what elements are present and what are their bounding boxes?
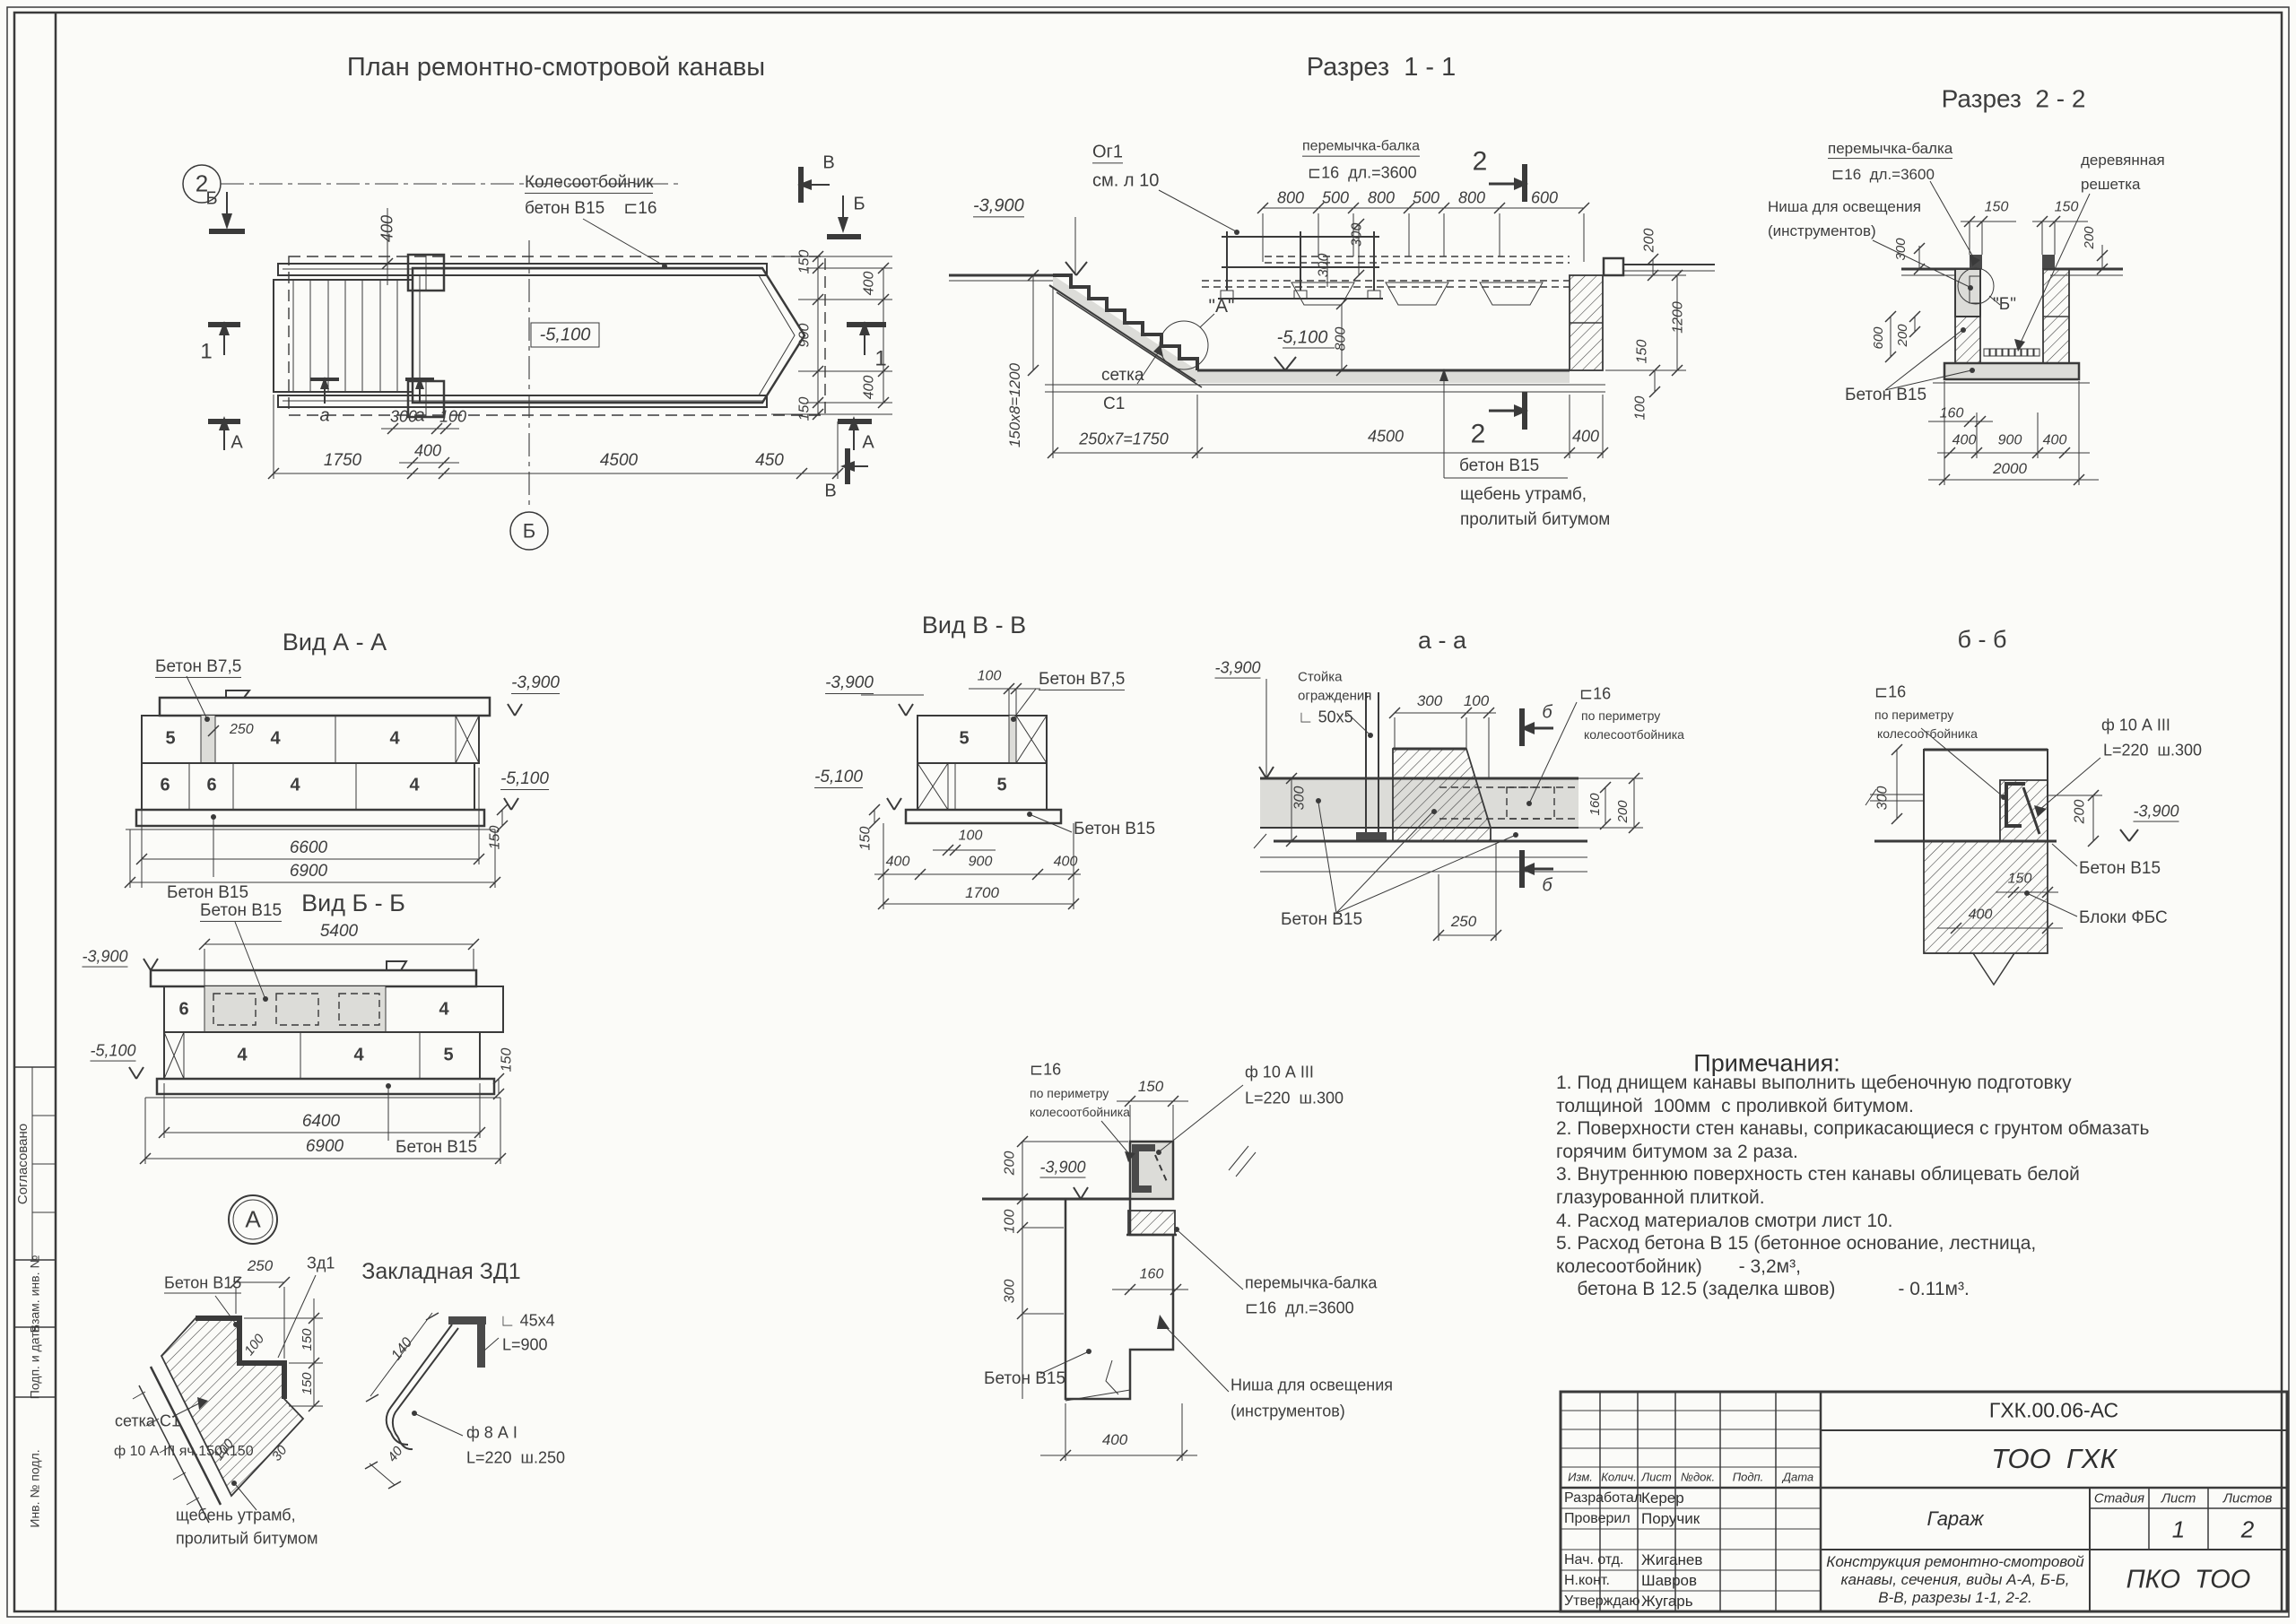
label-r11-dim-800v: 800	[1335, 327, 1350, 352]
label-vbb-block-4c: 4	[353, 1046, 363, 1065]
label-vvv-dim-100b: 100	[959, 829, 983, 845]
label-db-f10b: L=220 ш.300	[1245, 1090, 1344, 1107]
titleblock-desc-line1: Конструкция ремонтно-смотровой	[1826, 1553, 2083, 1571]
note-line-8: 5. Расход бетона В 15 (бетонное основани…	[1556, 1233, 2283, 1256]
label-r22-derev: деревянная	[2081, 152, 2165, 169]
label-r22-peremychka2: ⊏16 дл.=3600	[1831, 167, 1935, 183]
label-vvv-dim-900: 900	[969, 855, 993, 871]
label-da-dim-150a: 150	[300, 1328, 315, 1350]
note-line-2: толщиной 100мм с проливкой битумом.	[1556, 1096, 2283, 1119]
label-r11-dim-4500: 4500	[1368, 429, 1404, 446]
label-r11-setka: сетка	[1101, 367, 1144, 385]
titleblock-row6-name: Жугарь	[1641, 1593, 1693, 1611]
label-r11-detail-a: "А"	[1209, 297, 1235, 317]
label-plan-1-mark-right: 1	[874, 347, 886, 369]
label-r22-dim-200b: 200	[1896, 324, 1910, 346]
label-sbb-bloki: Блоки ФБС	[2079, 909, 2168, 927]
label-r11-dim-300a: 300	[1351, 223, 1366, 248]
label-vaa-block-4c: 4	[290, 777, 300, 795]
plan-view-drawing	[183, 165, 892, 550]
label-vvv-block-5a: 5	[959, 730, 969, 749]
label-stamp-soglasovano: Согласовано	[16, 1124, 30, 1204]
note-line-4: горячим битумом за 2 раза.	[1556, 1142, 2283, 1165]
label-r22-peremychka: перемычка-балка	[1828, 141, 1952, 159]
label-zk-ugolok: ∟ 45x4	[500, 1313, 555, 1330]
label-viewBB-title: Вид Б - Б	[301, 890, 405, 916]
label-vvv-beton15: Бетон В15	[1074, 821, 1155, 838]
titleblock-sheet-num: 1	[2172, 1516, 2185, 1544]
label-plan-v-mark-top: В	[822, 154, 834, 173]
label-plan-title: План ремонтно-смотровой канавы	[347, 54, 765, 81]
label-r11-2-top: 2	[1473, 147, 1488, 176]
label-vbb-dim-6400: 6400	[302, 1113, 340, 1131]
titleblock-object: Гараж	[1926, 1507, 1983, 1531]
label-r11-dim-500b: 500	[1413, 190, 1439, 207]
label-vbb-block-4b: 4	[237, 1046, 247, 1065]
label-r11-peremychka: перемычка-балка	[1302, 140, 1420, 157]
note-line-5: 3. Внутреннюю поверхность стен канавы об…	[1556, 1164, 2283, 1187]
label-plan-kolesootboynik: Колесоотбойник	[525, 174, 653, 194]
label-db-c16b: по периметру	[1030, 1087, 1109, 1100]
label-section22-title: Разрез 2 - 2	[1942, 85, 2086, 111]
label-r22-dim-2000: 2000	[1993, 461, 2027, 477]
label-saa-dim-300l: 300	[1293, 786, 1309, 811]
label-vaa-block-4a: 4	[270, 730, 280, 749]
label-r22-nisha: Ниша для освещения	[1768, 199, 1921, 215]
label-plan-a-mark-right: А	[862, 434, 874, 453]
label-viewAA-title: Вид А - А	[283, 630, 387, 655]
titleblock-col-data: Дата	[1783, 1471, 1813, 1484]
label-r11-dim-250x7: 250x7=1750	[1079, 431, 1169, 448]
label-saa-b-bot: б	[1542, 877, 1552, 896]
label-plan-b-mark-tl: Б	[205, 190, 217, 209]
label-zk-f8: ф 8 А I	[466, 1425, 517, 1442]
label-plan-kolesootboynik-mat: бетон В15 ⊏16	[525, 200, 657, 218]
label-saa-level-3900: -3,900	[1214, 660, 1260, 679]
label-r22-dim-150b: 150	[2055, 201, 2079, 216]
label-r22-dim-400a: 400	[1952, 434, 1977, 449]
label-saa-dim-160: 160	[1588, 793, 1603, 815]
label-vvv-dim-400a: 400	[886, 855, 910, 871]
label-da-beton15: Бетон В15	[164, 1275, 241, 1294]
note-line-7: 4. Расход материалов смотри лист 10.	[1556, 1211, 2283, 1234]
label-plan-dim-150a: 150	[798, 250, 813, 274]
label-r11-2-bottom: 2	[1471, 420, 1486, 448]
titleblock-row5-role: Н.конт.	[1564, 1573, 1610, 1589]
label-sbb-dim-400: 400	[1969, 908, 1993, 924]
titleblock-col-list: Лист	[1641, 1471, 1671, 1484]
label-r11-scheben: щебень утрамб,	[1460, 486, 1587, 504]
label-saa-dim-100t: 100	[1464, 693, 1489, 709]
label-aa-title: а - а	[1418, 628, 1466, 653]
label-plan-dim-1750: 1750	[324, 452, 361, 470]
label-plan-b-mark-tr: Б	[853, 195, 865, 214]
label-plan-dim-400r2: 400	[863, 376, 878, 400]
label-sbb-dim-300: 300	[1876, 786, 1892, 811]
titleblock-sheet-label: Лист	[2161, 1491, 2196, 1507]
label-r22-dim-150a: 150	[1985, 201, 2009, 216]
titleblock-row4-role: Нач. отд.	[1564, 1552, 1623, 1568]
titleblock-row1-name: Керер	[1641, 1489, 1684, 1507]
label-saa-beton15: Бетон В15	[1281, 911, 1362, 929]
label-db-dim-400: 400	[1102, 1432, 1127, 1448]
label-sbb-beton15: Бетон В15	[2079, 860, 2161, 878]
label-r22-dim-400b: 400	[2043, 434, 2067, 449]
label-plan-dim-100: 100	[439, 409, 466, 426]
label-plan-dim-150b: 150	[798, 397, 813, 421]
label-vbb-dim-5400: 5400	[320, 923, 358, 941]
detail-a-drawing	[133, 1195, 323, 1523]
label-r11-dim-1200: 1200	[1672, 301, 1687, 334]
label-r22-detail-b: "Б"	[1993, 296, 2016, 314]
drawing-sheet: План ремонтно-смотровой канавыРазрез 1 -…	[0, 0, 2296, 1624]
label-plan-level: -5,100	[540, 326, 591, 345]
label-vvv-level-3900: -3,900	[825, 674, 874, 694]
notes-text: 1. Под днищем канавы выполнить щебеночну…	[1556, 1073, 2283, 1302]
label-r11-dim-150x8: 150x8=1200	[1007, 363, 1023, 447]
label-vbb-level-5100: -5,100	[90, 1043, 135, 1062]
label-vaa-dim-6900: 6900	[290, 863, 327, 881]
label-plan-dim-400r1: 400	[863, 272, 878, 296]
titleblock-row2-role: Проверил	[1564, 1511, 1631, 1527]
label-db-nisha: Ниша для освещения	[1231, 1377, 1393, 1394]
label-stamp-vzam: Взам. инв. №	[29, 1255, 42, 1333]
label-saa-c16: ⊏16	[1579, 686, 1611, 703]
note-line-9: колесоотбойник) - 3,2м³,	[1556, 1256, 2283, 1280]
label-saa-c16c: колесоотбойника	[1584, 728, 1684, 742]
label-r11-level-3900: -3,900	[973, 196, 1024, 217]
titleblock-org: ПКО ТОО	[2126, 1566, 2251, 1595]
label-vbb-dim-150: 150	[500, 1048, 516, 1073]
note-line-1: 1. Под днищем канавы выполнить щебеночну…	[1556, 1073, 2283, 1096]
label-da-scheben: щебень утрамб,	[176, 1507, 296, 1524]
label-sbb-f10b: L=220 ш.300	[2103, 743, 2202, 760]
label-db-c16c: колесоотбойника	[1030, 1106, 1130, 1119]
label-sbb-c16b: по периметру	[1874, 708, 1953, 722]
label-vaa-dim-250: 250	[230, 723, 254, 738]
label-zakladnaya-title: Закладная ЗД1	[361, 1260, 520, 1283]
label-da-dim-250: 250	[248, 1258, 273, 1274]
label-vaa-dim-6600: 6600	[290, 839, 327, 857]
note-line-6: глазурованной плиткой.	[1556, 1187, 2283, 1211]
label-plan-a-cut-left: а	[319, 407, 329, 426]
titleblock-sheets-total: 2	[2241, 1516, 2254, 1544]
label-saa-dim-300t: 300	[1417, 693, 1442, 709]
label-r11-og1-see: см. л 10	[1092, 171, 1159, 190]
label-db-dim-100: 100	[1004, 1210, 1019, 1234]
titleblock-row4-name: Жиганев	[1641, 1551, 1702, 1569]
drawing-linework	[0, 0, 2296, 1624]
label-plan-v-mark-bottom: В	[824, 482, 836, 501]
label-da-scheben2: пролитый битумом	[176, 1531, 318, 1548]
label-plan-axis-b: Б	[523, 520, 535, 541]
label-plan-1-mark-left: 1	[200, 340, 212, 362]
titleblock-sheets-label: Листов	[2223, 1491, 2273, 1507]
view-v-v-drawing	[861, 683, 1081, 909]
label-vvv-dim-400b: 400	[1054, 855, 1078, 871]
label-r11-dim-400: 400	[1572, 429, 1599, 446]
label-saa-stoyka3: ∟ 50x5	[1298, 709, 1353, 726]
note-line-10: бетона В 12.5 (заделка швов) - 0.11м³.	[1556, 1279, 2283, 1302]
label-zk-f8b: L=220 ш.250	[466, 1450, 565, 1467]
label-plan-dim-400b: 400	[414, 443, 441, 460]
label-r11-setka2: С1	[1103, 395, 1125, 413]
label-r11-dim-500a: 500	[1322, 190, 1349, 207]
label-detailA-letter: А	[245, 1207, 260, 1231]
titleblock-stage-label: Стадия	[2094, 1491, 2144, 1507]
titleblock-col-izm: Изм.	[1568, 1471, 1593, 1484]
label-sbb-level-3900: -3,900	[2133, 803, 2179, 822]
label-plan-dim-450: 450	[755, 452, 784, 470]
label-vvv-beton75: Бетон В7,5	[1039, 671, 1125, 690]
label-vaa-block-4d: 4	[409, 777, 419, 795]
label-vbb-beton15t: Бетон В15	[200, 902, 282, 922]
label-r22-dim-200a: 200	[2083, 226, 2097, 248]
label-vaa-block-4b: 4	[389, 730, 399, 749]
label-db-level-3900: -3,900	[1039, 1159, 1085, 1178]
titleblock-row1-role: Разработал	[1564, 1490, 1642, 1507]
titleblock-col-podp: Подп.	[1733, 1471, 1764, 1484]
label-r11-dim-150: 150	[1636, 340, 1651, 364]
label-vbb-block-6: 6	[178, 1001, 188, 1020]
label-vvv-block-5b: 5	[996, 777, 1006, 795]
label-r11-peremychka2: ⊏16 дл.=3600	[1308, 165, 1417, 182]
label-vbb-level-3900: -3,900	[82, 949, 127, 968]
label-sbb-f10: ф 10 А III	[2101, 717, 2170, 734]
titleblock-col-ndok: №док.	[1681, 1471, 1715, 1484]
titleblock-row2-name: Поручик	[1641, 1510, 1700, 1528]
label-plan-dim-300: 300	[390, 409, 417, 426]
label-vbb-beton15b: Бетон В15	[396, 1139, 477, 1157]
label-zk-ugolok2: L=900	[502, 1337, 548, 1354]
label-saa-stoyka2: ограждения	[1298, 689, 1371, 703]
label-vbb-block-5: 5	[443, 1046, 453, 1065]
label-db-dim-150: 150	[1138, 1079, 1163, 1095]
titleblock-desc-line2: канавы, сечения, виды А-А, Б-Б,	[1841, 1571, 2070, 1589]
label-vbb-block-4a: 4	[439, 1001, 448, 1020]
label-viewVV-title: Вид В - В	[922, 612, 1026, 638]
label-db-dim-160: 160	[1140, 1268, 1164, 1283]
label-vbb-dim-6900: 6900	[306, 1138, 344, 1156]
label-vvv-dim-100t: 100	[978, 670, 1002, 685]
label-vaa-level-5100: -5,100	[500, 770, 549, 790]
label-r11-og1: Ог1	[1092, 143, 1123, 163]
label-plan-dim-400-top: 400	[379, 215, 396, 242]
label-r22-dim-300: 300	[1894, 238, 1909, 260]
label-plan-dim-4500: 4500	[600, 452, 638, 470]
titleblock-company: ТОО ГХК	[1991, 1443, 2117, 1475]
label-da-zd1: Зд1	[307, 1255, 335, 1272]
label-vaa-beton15: Бетон В15	[167, 884, 248, 902]
note-line-3: 2. Поверхности стен канавы, соприкасающи…	[1556, 1118, 2283, 1142]
section-1-1-drawing	[949, 164, 1715, 478]
label-r22-nisha2: (инструментов)	[1768, 223, 1876, 239]
label-db-f10: ф 10 А III	[1245, 1064, 1314, 1081]
label-plan-dim-900: 900	[798, 324, 813, 348]
label-r22-dim-900: 900	[1998, 434, 2022, 449]
label-saa-b-top: б	[1542, 704, 1552, 723]
label-db-dim-200: 200	[1004, 1151, 1019, 1176]
label-db-beton15: Бетон В15	[984, 1370, 1065, 1388]
label-r11-scheben2: пролитый битумом	[1460, 511, 1610, 529]
label-section11-title: Разрез 1 - 1	[1307, 54, 1457, 81]
label-saa-dim-250: 250	[1451, 914, 1476, 930]
label-sbb-c16: ⊏16	[1874, 684, 1906, 701]
label-vvv-level-5100: -5,100	[814, 769, 863, 788]
label-r11-dim-800c: 800	[1458, 190, 1485, 207]
label-da-setka: сетка С1	[115, 1413, 180, 1430]
label-r11-dim-800b: 800	[1368, 190, 1395, 207]
label-saa-c16b: по периметру	[1581, 709, 1660, 723]
label-saa-stoyka: Стойка	[1298, 670, 1343, 684]
label-vaa-level-3900: -3,900	[511, 674, 560, 694]
label-stamp-podp: Подп. и дата	[29, 1325, 42, 1399]
section-b-b-drawing	[1865, 728, 2138, 985]
label-sbb-dim-150: 150	[2008, 873, 2032, 888]
label-vvv-dim-1700: 1700	[965, 885, 999, 901]
label-r22-dim-600: 600	[1872, 326, 1886, 349]
titleblock-desc-line3: В-В, разрезы 1-1, 2-2.	[1878, 1589, 2031, 1607]
label-r11-dim-200: 200	[1643, 229, 1658, 253]
titleblock-row5-name: Шавров	[1641, 1572, 1697, 1590]
label-db-peremychka2: ⊏16 дл.=3600	[1245, 1300, 1354, 1317]
label-vaa-block-6a: 6	[160, 777, 170, 795]
titleblock-row6-role: Утверждаю	[1564, 1594, 1640, 1610]
label-plan-a-mark-left: А	[230, 434, 242, 453]
label-r11-dim-300b: 300	[1318, 254, 1333, 278]
label-r11-dim-800a: 800	[1277, 190, 1304, 207]
label-r11-dim-600: 600	[1531, 190, 1558, 207]
label-db-peremychka: перемычка-балка	[1245, 1275, 1377, 1292]
label-saa-dim-200: 200	[1616, 800, 1631, 822]
label-db-dim-300: 300	[1004, 1280, 1019, 1304]
label-vaa-block-5: 5	[165, 730, 175, 749]
titleblock-doc-number: ГХК.00.06-АС	[1989, 1399, 2118, 1423]
detail-b-drawing	[982, 1085, 1256, 1461]
label-r22-dim-160: 160	[1940, 407, 1964, 422]
label-sbb-dim-200: 200	[2074, 800, 2089, 824]
label-r11-beton: бетон В15	[1459, 457, 1539, 475]
label-r11-dim-100: 100	[1634, 396, 1649, 421]
titleblock-col-kolich: Колич.	[1601, 1471, 1637, 1484]
label-vaa-dim-150: 150	[489, 826, 504, 850]
label-r22-resh: решетка	[2081, 177, 2141, 193]
label-bb-title: б - б	[1958, 627, 2007, 652]
label-r11-level-5100: -5,100	[1277, 329, 1328, 348]
label-db-c16: ⊏16	[1030, 1062, 1061, 1079]
label-db-nisha2: (инструментов)	[1231, 1403, 1345, 1420]
label-r22-beton: Бетон В15	[1845, 386, 1926, 404]
label-sbb-c16c: колесоотбойника	[1877, 727, 1978, 741]
label-vvv-dim-150: 150	[859, 827, 874, 851]
sheet-frame	[7, 7, 2289, 1617]
label-vaa-beton75: Бетон В7,5	[155, 658, 241, 678]
label-vaa-block-6b: 6	[206, 777, 216, 795]
label-stamp-inv: Инв. № подл.	[29, 1449, 42, 1527]
label-da-dim-150b: 150	[300, 1372, 315, 1394]
